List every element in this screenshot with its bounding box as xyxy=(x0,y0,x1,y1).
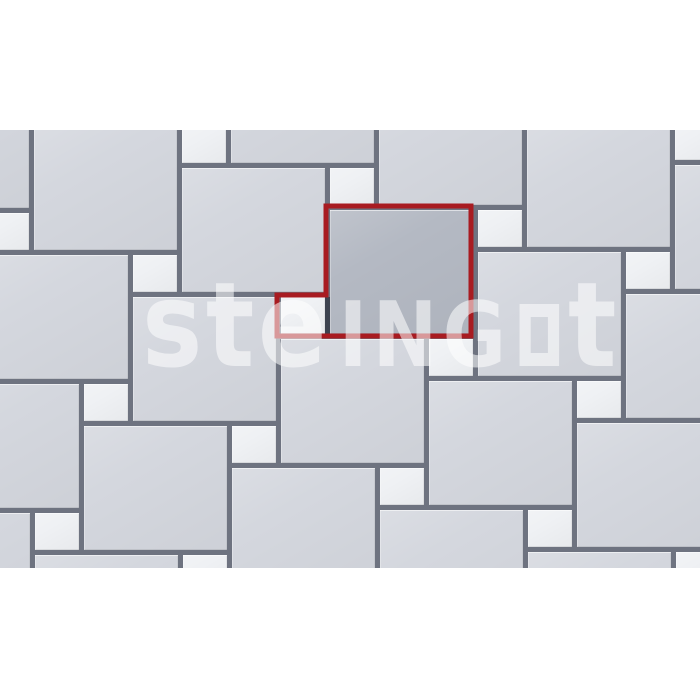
paver-tile-large xyxy=(429,381,572,505)
paver-tile-large xyxy=(626,294,700,418)
paver-tile-large xyxy=(527,130,670,247)
paver-tile-large xyxy=(528,552,671,568)
paver-tile-small xyxy=(84,384,128,421)
paving-pattern: ste ING t xyxy=(0,130,700,568)
paver-tile-large xyxy=(182,168,325,292)
paver-tile-small xyxy=(478,210,522,247)
paver-tile-large xyxy=(380,510,523,568)
paver-tile-large xyxy=(478,252,621,376)
paver-tile-small xyxy=(281,297,325,334)
paver-tile-large xyxy=(379,130,522,205)
paver-tile-small xyxy=(330,168,374,205)
paver-tile-small xyxy=(380,468,424,505)
paver-tile-large xyxy=(577,423,700,547)
paver-tile-large xyxy=(232,468,375,568)
paver-tile-large xyxy=(34,130,177,250)
paver-tile-small xyxy=(0,213,29,250)
paver-tile-small xyxy=(35,513,79,550)
product-image: ste ING t xyxy=(0,0,700,700)
paver-tile-large xyxy=(675,165,700,289)
paver-tile-large xyxy=(84,426,227,550)
paver-tile-large xyxy=(0,130,29,208)
paver-tile-small xyxy=(133,255,177,292)
module-inner-joint xyxy=(325,297,330,334)
paver-tile-small xyxy=(182,130,226,163)
paver-tile-large xyxy=(231,130,374,163)
paver-tile-small xyxy=(577,381,621,418)
paver-tile-small xyxy=(183,555,227,568)
paver-tile-small xyxy=(429,339,473,376)
paver-tile-small xyxy=(232,426,276,463)
paver-tile-large-highlighted xyxy=(330,210,473,334)
paver-tile-small xyxy=(676,552,700,568)
paver-tile-large xyxy=(35,555,178,568)
paver-tile-small xyxy=(528,510,572,547)
paver-tile-small xyxy=(626,252,670,289)
paver-tile-small xyxy=(675,130,700,160)
paver-tile-large xyxy=(281,339,424,463)
paver-tile-large xyxy=(133,297,276,421)
paver-tile-large xyxy=(0,513,30,568)
paver-tile-large xyxy=(0,255,128,379)
paver-tile-large xyxy=(0,384,79,508)
